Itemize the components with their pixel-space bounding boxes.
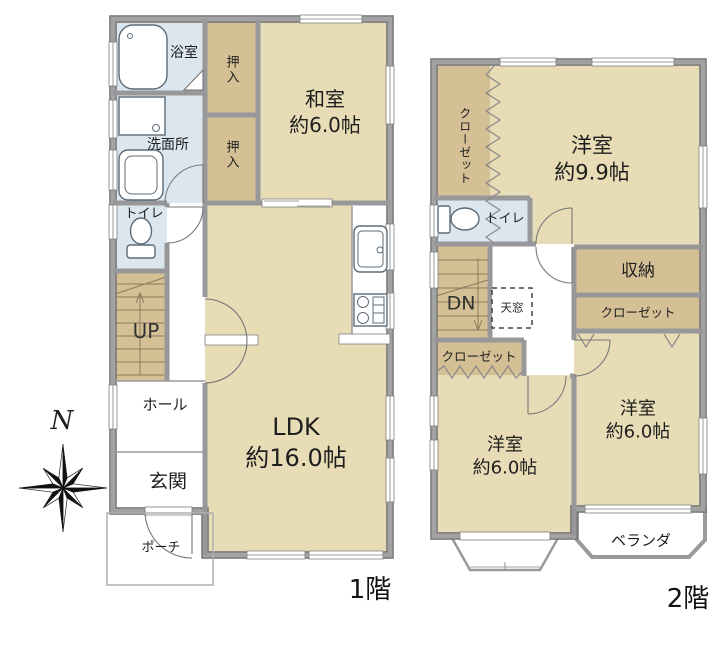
entrance-label: 玄関 <box>149 470 187 495</box>
room-name-text: 洋室 <box>554 133 629 160</box>
room-name-text: 洋室 <box>473 434 538 457</box>
room-name-text: 洋室 <box>606 398 671 421</box>
compass-north-label: N <box>51 405 74 439</box>
toilet2-label: トイレ <box>485 212 524 229</box>
room-name-text: 和室 <box>289 86 361 112</box>
floor2-tag: 2階 <box>667 583 710 617</box>
stairs-dn-label: DN <box>447 292 476 317</box>
western-main-label: 洋室 約9.9帖 <box>554 133 629 188</box>
veranda-label: ベランダ <box>611 531 671 551</box>
washer-pan-icon <box>119 97 165 135</box>
washroom-label: 洗面所 <box>147 136 189 154</box>
room-size-text: 約9.9帖 <box>554 160 629 187</box>
closet-tall-label: クローゼット <box>456 107 472 185</box>
floor-plan-canvas: 浴室 洗面所 トイレ UP ホール 玄関 ポーチ 押入 押入 和室 約6.0帖 … <box>0 0 727 648</box>
bathtub-icon <box>119 25 167 89</box>
bath-label: 浴室 <box>170 44 198 62</box>
oshiire-bottom-label: 押入 <box>222 140 239 170</box>
washitsu-label: 和室 約6.0帖 <box>289 86 361 138</box>
room-size-text: 約6.0帖 <box>606 421 671 444</box>
stove-icon <box>354 294 387 326</box>
room-size-text: 約16.0帖 <box>245 443 346 474</box>
compass-rose <box>19 444 107 532</box>
room-name-text: LDK <box>245 412 346 443</box>
vanity-sink-icon <box>119 150 163 200</box>
stairs-up-label: UP <box>133 318 160 344</box>
floor-plan-drawing <box>0 0 727 648</box>
closet-right-label: クローゼット <box>600 305 675 321</box>
ldk-label: LDK 約16.0帖 <box>245 412 346 474</box>
hall-label: ホール <box>142 395 187 415</box>
western-right-label: 洋室 約6.0帖 <box>606 398 671 445</box>
toilet1-label: トイレ <box>124 207 163 224</box>
bay-window <box>452 538 558 570</box>
porch-label: ポーチ <box>141 541 180 558</box>
western-left-label: 洋室 約6.0帖 <box>473 434 538 481</box>
floor1-tag: 1階 <box>349 574 392 608</box>
oshiire-top-label: 押入 <box>222 55 239 85</box>
storage-label: 収納 <box>621 260 655 282</box>
room-size-text: 約6.0帖 <box>473 457 538 480</box>
kitchen-sink-icon <box>354 226 387 272</box>
skylight-label: 天窓 <box>501 301 524 316</box>
closet-left-label: クローゼット <box>441 349 516 365</box>
room-size-text: 約6.0帖 <box>289 112 361 138</box>
